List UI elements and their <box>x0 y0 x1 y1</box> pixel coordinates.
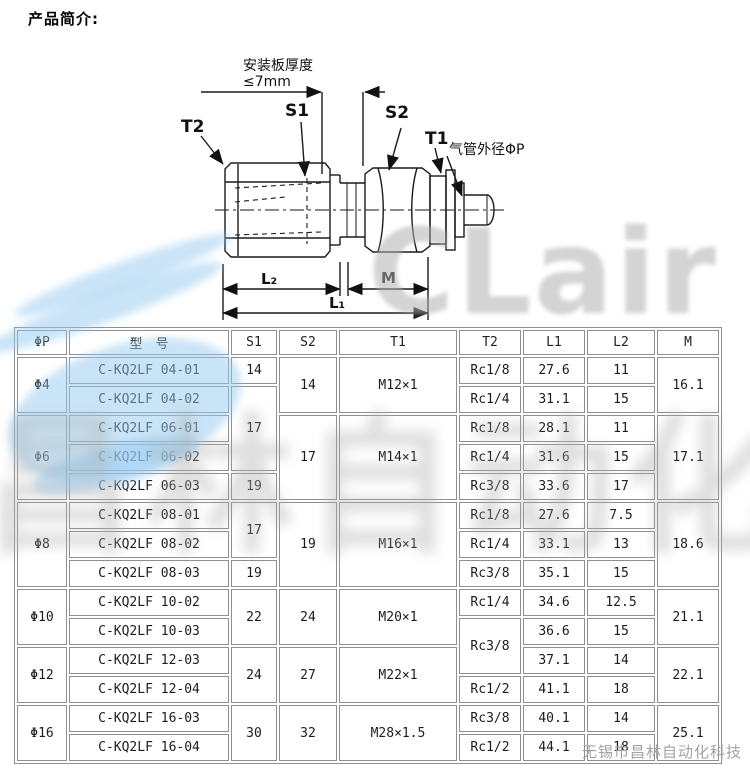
table-cell: 33.6 <box>523 473 585 500</box>
table-cell: C-KQ2LF 04-02 <box>69 386 229 413</box>
column-header: M <box>657 330 719 355</box>
plate-thickness-value: ≤7mm <box>243 74 291 90</box>
table-cell: 37.1 <box>523 647 585 674</box>
table-cell: 14 <box>587 705 655 732</box>
table-cell: C-KQ2LF 12-03 <box>69 647 229 674</box>
table-cell: 17 <box>231 502 277 558</box>
table-cell: Rc1/4 <box>459 386 521 413</box>
table-cell: C-KQ2LF 06-03 <box>69 473 229 500</box>
label-s1: S1 <box>285 101 309 121</box>
table-cell: 30 <box>231 705 277 761</box>
table-cell: 12.5 <box>587 589 655 616</box>
fitting-outline <box>201 92 507 320</box>
table-cell: 18.6 <box>657 502 719 587</box>
table-cell: 13 <box>587 531 655 558</box>
table-cell: Φ10 <box>17 589 67 645</box>
table-cell: 15 <box>587 618 655 645</box>
table-cell: 14 <box>279 357 337 413</box>
table-row: Φ6C-KQ2LF 06-0117M14×1Rc1/828.11117.1 <box>17 415 719 442</box>
table-cell: 22 <box>231 589 277 645</box>
table-cell: 17 <box>587 473 655 500</box>
label-s2: S2 <box>385 103 409 123</box>
table-cell: C-KQ2LF 08-03 <box>69 560 229 587</box>
table-row: Φ4C-KQ2LF 04-011414M12×1Rc1/827.61116.1 <box>17 357 719 384</box>
table-row: Φ10C-KQ2LF 10-022224M20×1Rc1/434.612.521… <box>17 589 719 616</box>
table-cell: Rc3/8 <box>459 705 521 732</box>
table-row: Φ12C-KQ2LF 12-032427M22×137.11422.1 <box>17 647 719 674</box>
table-cell: Rc1/8 <box>459 415 521 442</box>
table-cell: 15 <box>587 386 655 413</box>
table-cell: 27.6 <box>523 502 585 529</box>
table-cell: Φ8 <box>17 502 67 587</box>
table-cell: M28×1.5 <box>339 705 457 761</box>
table-cell: Rc1/4 <box>459 444 521 471</box>
table-cell: Rc1/2 <box>459 676 521 703</box>
table-cell: Φ6 <box>17 415 67 500</box>
table-row: Φ16C-KQ2LF 16-033032M28×1.5Rc3/840.11425… <box>17 705 719 732</box>
table-cell: 14 <box>587 647 655 674</box>
table-cell: 31.6 <box>523 444 585 471</box>
table-cell: 18 <box>587 734 655 761</box>
table-cell: 36.6 <box>523 618 585 645</box>
table-cell: C-KQ2LF 16-03 <box>69 705 229 732</box>
tube-od-label: 气管外径ΦP <box>449 142 524 158</box>
table-cell: M12×1 <box>339 357 457 413</box>
table-cell: C-KQ2LF 06-01 <box>69 415 229 442</box>
table-cell: 19 <box>231 473 277 500</box>
table-cell: Rc1/2 <box>459 734 521 761</box>
table-cell: Φ16 <box>17 705 67 761</box>
table-cell: Rc3/8 <box>459 618 521 674</box>
table-cell: 40.1 <box>523 705 585 732</box>
table-cell: Rc1/4 <box>459 531 521 558</box>
table-cell: 7.5 <box>587 502 655 529</box>
table-cell: M20×1 <box>339 589 457 645</box>
table-cell: 25.1 <box>657 705 719 761</box>
column-header: L1 <box>523 330 585 355</box>
spec-table: ΦP型 号S1S2T1T2L1L2MΦ4C-KQ2LF 04-011414M12… <box>14 327 722 764</box>
product-intro-page: 产品简介: <box>0 0 750 771</box>
plate-thickness-label: 安装板厚度 <box>243 58 313 74</box>
table-cell: 21.1 <box>657 589 719 645</box>
dim-l2-label: L₂ <box>261 270 277 288</box>
table-cell: 16.1 <box>657 357 719 413</box>
column-header: T2 <box>459 330 521 355</box>
table-cell: 35.1 <box>523 560 585 587</box>
table-cell: 17.1 <box>657 415 719 500</box>
table-cell: C-KQ2LF 08-02 <box>69 531 229 558</box>
table-cell: Rc3/8 <box>459 560 521 587</box>
table-cell: C-KQ2LF 10-02 <box>69 589 229 616</box>
table-cell: 14 <box>231 357 277 384</box>
column-header: ΦP <box>17 330 67 355</box>
table-cell: 22.1 <box>657 647 719 703</box>
table-cell: Φ12 <box>17 647 67 703</box>
table-cell: 27.6 <box>523 357 585 384</box>
label-t1: T1 <box>425 129 448 149</box>
table-cell: 41.1 <box>523 676 585 703</box>
column-header: S2 <box>279 330 337 355</box>
table-row: Φ8C-KQ2LF 08-011719M16×1Rc1/827.67.518.6 <box>17 502 719 529</box>
column-header: 型 号 <box>69 330 229 355</box>
label-t2: T2 <box>181 117 204 137</box>
table-cell: M14×1 <box>339 415 457 500</box>
table-cell: 15 <box>587 560 655 587</box>
dim-m-label: M <box>381 269 396 287</box>
table-cell: C-KQ2LF 16-04 <box>69 734 229 761</box>
table-cell: 11 <box>587 357 655 384</box>
table-cell: 17 <box>279 415 337 500</box>
table-cell: 18 <box>587 676 655 703</box>
technical-drawing: 安装板厚度 ≤7mm T2 S1 S2 T1 气管外径ΦP L₂ M L₁ <box>135 52 625 330</box>
table-cell: 19 <box>279 502 337 587</box>
column-header: T1 <box>339 330 457 355</box>
table-cell: 17 <box>231 386 277 471</box>
table-cell: 31.1 <box>523 386 585 413</box>
table-cell: Rc1/8 <box>459 357 521 384</box>
table-cell: Rc1/8 <box>459 502 521 529</box>
table-cell: 34.6 <box>523 589 585 616</box>
table-cell: C-KQ2LF 10-03 <box>69 618 229 645</box>
table-cell: 27 <box>279 647 337 703</box>
table-cell: 33.1 <box>523 531 585 558</box>
table-cell: 11 <box>587 415 655 442</box>
table-cell: 24 <box>231 647 277 703</box>
table-cell: Rc3/8 <box>459 473 521 500</box>
table-cell: Rc1/4 <box>459 589 521 616</box>
column-header: S1 <box>231 330 277 355</box>
table-cell: M16×1 <box>339 502 457 587</box>
table-cell: 28.1 <box>523 415 585 442</box>
table-cell: 24 <box>279 589 337 645</box>
table-cell: C-KQ2LF 12-04 <box>69 676 229 703</box>
table-header-row: ΦP型 号S1S2T1T2L1L2M <box>17 330 719 355</box>
table-cell: M22×1 <box>339 647 457 703</box>
table-cell: 19 <box>231 560 277 587</box>
page-title: 产品简介: <box>28 8 99 29</box>
table-cell: 44.1 <box>523 734 585 761</box>
table-cell: Φ4 <box>17 357 67 413</box>
table-cell: 32 <box>279 705 337 761</box>
table-cell: C-KQ2LF 04-01 <box>69 357 229 384</box>
table-cell: C-KQ2LF 08-01 <box>69 502 229 529</box>
dim-l1-label: L₁ <box>329 294 345 312</box>
table-cell: 15 <box>587 444 655 471</box>
table-cell: C-KQ2LF 06-02 <box>69 444 229 471</box>
column-header: L2 <box>587 330 655 355</box>
